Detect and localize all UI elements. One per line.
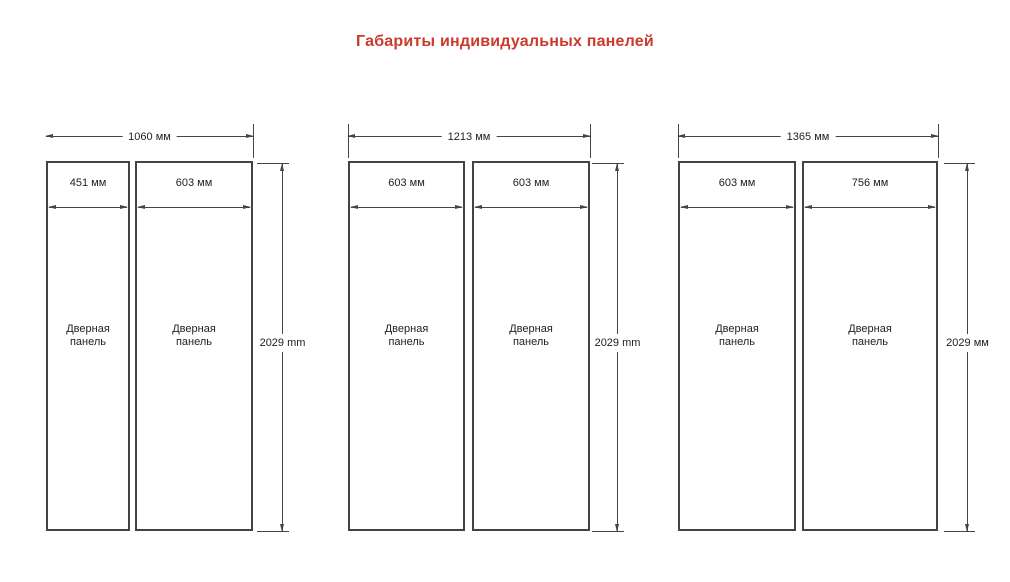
dimension-line-height: 2029 мм [967,164,968,531]
tick-line [944,531,975,532]
door-panel: Дверная панель [802,161,938,531]
door-panel: Дверная панель [46,161,130,531]
dimension-line-overall-width: 1213 мм [348,136,590,137]
tick-line [257,531,289,532]
arrowhead-right-icon [120,205,128,209]
arrowhead-right-icon [580,205,588,209]
page-title: Габариты индивидуальных панелей [0,33,1010,51]
panel-label: Дверная панель [376,323,438,349]
arrowhead-left-icon [474,205,482,209]
panel-height-label: 2029 mm [593,334,643,352]
door-panel: Дверная панель [678,161,796,531]
panel-height-label: 2029 мм [944,334,991,352]
tick-line [257,163,289,164]
panel-width-label: 603 мм [135,177,253,189]
dimension-line-panel-width [475,207,587,208]
panel-label: Дверная панель [839,323,901,349]
panel-width-label: 451 мм [46,177,130,189]
dimension-line-height: 2029 mm [617,164,618,531]
extension-line [348,124,349,158]
dimension-line-panel-width [805,207,935,208]
arrowhead-right-icon [928,205,936,209]
arrowhead-down-icon [280,524,284,532]
panel-label: Дверная панель [57,323,119,349]
arrowhead-up-icon [965,163,969,171]
tick-line [592,531,624,532]
arrowhead-up-icon [280,163,284,171]
panel-width-label: 603 мм [678,177,796,189]
arrowhead-right-icon [786,205,794,209]
arrowhead-left-icon [45,134,53,138]
dimension-line-panel-width [681,207,793,208]
door-panel: Дверная панель [472,161,590,531]
panel-label: Дверная панель [500,323,562,349]
dimension-line-height: 2029 mm [282,164,283,531]
arrowhead-right-icon [243,205,251,209]
panel-width-label: 603 мм [472,177,590,189]
arrowhead-down-icon [615,524,619,532]
panel-width-label: 756 мм [802,177,938,189]
dimension-line-overall-width: 1365 мм [678,136,938,137]
diagram-canvas: Габариты индивидуальных панелей 1060 мм … [0,0,1010,582]
tick-line [592,163,624,164]
arrowhead-down-icon [965,524,969,532]
overall-width-label: 1365 мм [781,131,836,143]
arrowhead-left-icon [137,205,145,209]
dimension-line-panel-width [138,207,250,208]
extension-line [253,124,254,158]
panel-height-label: 2029 mm [258,334,308,352]
overall-width-label: 1060 мм [122,131,177,143]
tick-line [944,163,975,164]
dimension-line-panel-width [351,207,462,208]
door-panel: Дверная панель [135,161,253,531]
panel-label: Дверная панель [706,323,768,349]
extension-line [678,124,679,158]
arrowhead-right-icon [455,205,463,209]
arrowhead-left-icon [680,205,688,209]
arrowhead-left-icon [48,205,56,209]
extension-line [590,124,591,158]
panel-label: Дверная панель [163,323,225,349]
door-panel: Дверная панель [348,161,465,531]
dimension-line-overall-width: 1060 мм [46,136,253,137]
arrowhead-left-icon [350,205,358,209]
arrowhead-up-icon [615,163,619,171]
arrowhead-left-icon [804,205,812,209]
panel-width-label: 603 мм [348,177,465,189]
overall-width-label: 1213 мм [442,131,497,143]
extension-line [938,124,939,158]
dimension-line-panel-width [49,207,127,208]
